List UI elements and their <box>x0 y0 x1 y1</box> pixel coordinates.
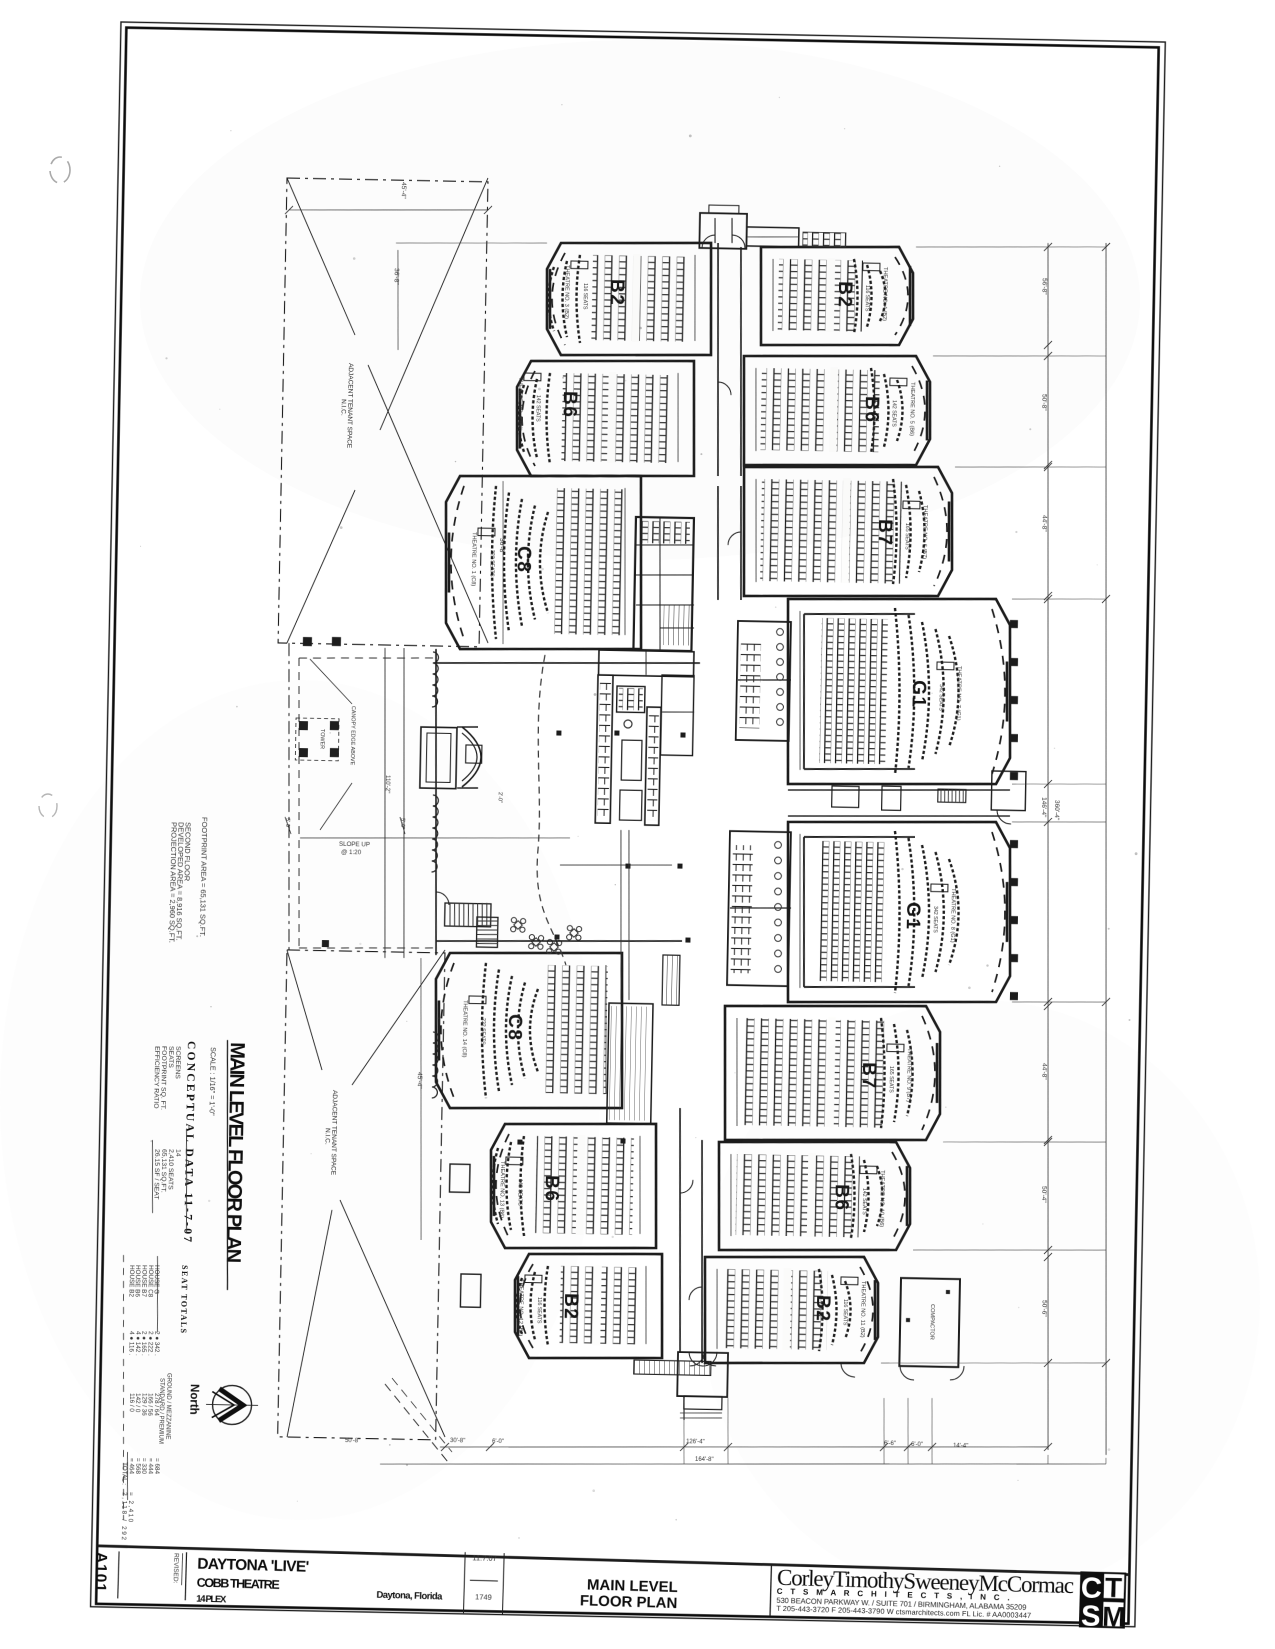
svg-text:126'-4": 126'-4" <box>686 1439 705 1445</box>
svg-text:FLOOR PLAN: FLOOR PLAN <box>580 1592 678 1612</box>
svg-text:14 PLEX: 14 PLEX <box>196 1594 227 1606</box>
svg-text:342 SEATS: 342 SEATS <box>931 906 938 933</box>
svg-text:M: M <box>1102 1601 1126 1633</box>
svg-text:THEATRE NO. 8 (G1): THEATRE NO. 8 (G1) <box>949 888 956 943</box>
svg-text:1749: 1749 <box>475 1592 492 1601</box>
svg-text:TOTAL :: TOTAL : <box>121 1462 128 1485</box>
svg-text:A101: A101 <box>91 1552 109 1594</box>
svg-text:11.7.07: 11.7.07 <box>472 1553 497 1563</box>
svg-text:Daytona, Florida: Daytona, Florida <box>376 1590 443 1603</box>
svg-text:S: S <box>1081 1600 1101 1633</box>
svg-text:DAYTONA 'LIVE': DAYTONA 'LIVE' <box>197 1556 309 1576</box>
svg-text:222 SEATS: 222 SEATS <box>488 550 495 577</box>
svg-text:COBB THEATRE: COBB THEATRE <box>197 1576 280 1592</box>
svg-text:REVISED:: REVISED: <box>172 1553 180 1584</box>
svg-text:THEATRE NO. 7 (G1): THEATRE NO. 7 (G1) <box>955 666 962 721</box>
svg-text:6'-0": 6'-0" <box>492 1439 504 1445</box>
svg-text:44'-8": 44'-8" <box>1040 515 1047 532</box>
svg-text:342 SEATS: 342 SEATS <box>937 684 944 711</box>
svg-text:G1: G1 <box>901 902 923 931</box>
svg-text:= 568: = 568 <box>134 1458 141 1475</box>
svg-text:G1: G1 <box>907 680 929 709</box>
svg-text:146'-4": 146'-4" <box>1040 797 1047 818</box>
svg-text:165 SEATS: 165 SEATS <box>903 523 910 550</box>
svg-text:360'-4": 360'-4" <box>1053 800 1060 821</box>
svg-text:164'-8": 164'-8" <box>695 1457 714 1463</box>
svg-text:T: T <box>1105 1572 1123 1603</box>
